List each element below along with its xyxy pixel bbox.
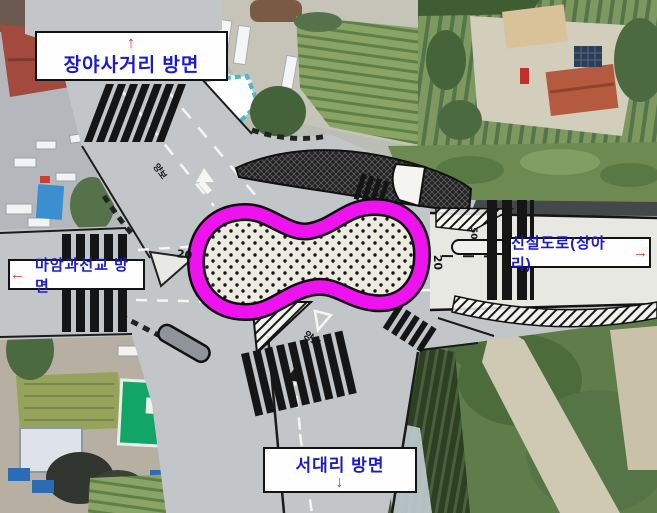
right-arrow-icon: →	[633, 244, 649, 261]
direction-label-west: ← 마암과선교 방면	[8, 259, 145, 290]
down-arrow-icon: ↓	[336, 476, 345, 490]
highlight-zone	[196, 207, 422, 312]
direction-label-east-text: 신설도로(상아리)	[511, 232, 625, 274]
aerial-intersection-map: 20 20 50 양보 양보 ↑ 장야사거리 방면 ← 마암과선교 방면 신설도…	[0, 0, 657, 513]
direction-label-north-text: 장야사거리 방면	[64, 50, 200, 77]
speed-limit-50: 50	[468, 227, 478, 240]
direction-label-west-text: 마암과선교 방면	[35, 254, 143, 296]
direction-label-north: ↑ 장야사거리 방면	[35, 31, 228, 81]
direction-label-south: 서대리 방면 ↓	[263, 447, 417, 493]
direction-label-south-text: 서대리 방면	[296, 451, 385, 476]
left-arrow-icon: ←	[10, 266, 26, 283]
direction-label-east: 신설도로(상아리) →	[509, 237, 651, 268]
speed-limit-20-west: 20	[176, 247, 193, 262]
speed-limit-20-east: 20	[431, 255, 445, 271]
up-arrow-icon: ↑	[127, 35, 137, 50]
